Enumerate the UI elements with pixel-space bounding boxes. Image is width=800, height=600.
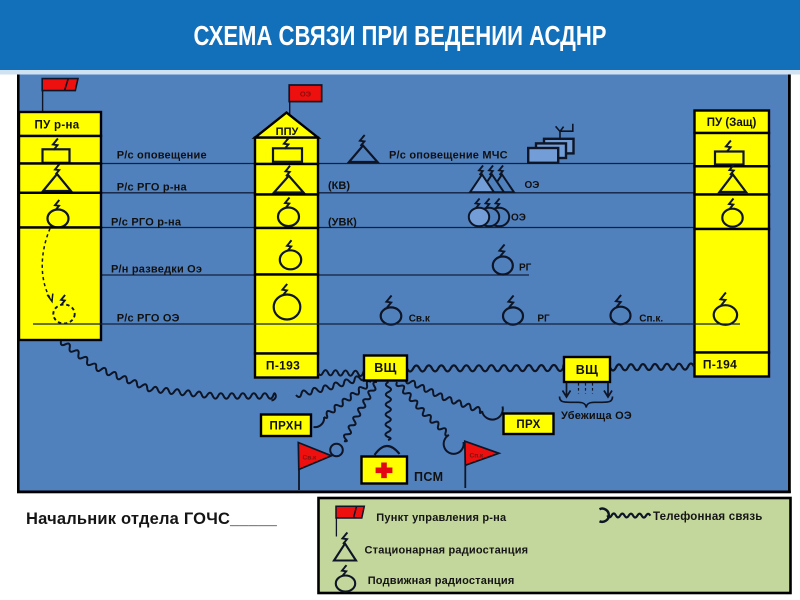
svg-text:ОЭ: ОЭ (300, 90, 312, 99)
svg-text:Р/с оповещение: Р/с оповещение (117, 150, 207, 162)
svg-text:ПУ (Защ): ПУ (Защ) (707, 117, 757, 129)
svg-text:Св.к: Св.к (409, 314, 431, 325)
svg-text:РГ: РГ (519, 263, 532, 274)
svg-text:Сп.к: Сп.к (470, 453, 484, 460)
svg-text:Стационарная радиостанция: Стационарная радиостанция (365, 545, 529, 557)
svg-text:РГ: РГ (537, 314, 550, 325)
svg-text:П-194: П-194 (703, 358, 737, 372)
svg-text:П-193: П-193 (266, 359, 300, 373)
svg-text:(КВ): (КВ) (328, 180, 350, 192)
svg-text:ОЭ: ОЭ (525, 180, 540, 191)
svg-text:(УВК): (УВК) (328, 217, 357, 229)
svg-text:Р/с РГО р-на: Р/с РГО р-на (117, 182, 188, 194)
svg-text:Телефонная связь: Телефонная связь (653, 511, 763, 523)
svg-text:Пункт управления р-на: Пункт управления р-на (376, 512, 507, 524)
svg-text:ВЩ: ВЩ (576, 363, 599, 377)
svg-text:Подвижная радиостанция: Подвижная радиостанция (368, 575, 515, 587)
svg-text:ПСМ: ПСМ (414, 470, 443, 484)
svg-text:ПРХ: ПРХ (516, 419, 540, 431)
svg-text:Св.к: Св.к (303, 455, 317, 462)
svg-text:Р/с РГО ОЭ: Р/с РГО ОЭ (117, 313, 180, 325)
svg-text:Начальник отдела ГОЧС_____: Начальник отдела ГОЧС_____ (26, 510, 278, 528)
svg-text:Убежища ОЭ: Убежища ОЭ (561, 410, 632, 422)
svg-text:Р/с оповещение МЧС: Р/с оповещение МЧС (389, 150, 508, 162)
svg-text:Р/н разведки Оэ: Р/н разведки Оэ (111, 264, 202, 276)
svg-text:ОЭ: ОЭ (511, 213, 526, 224)
svg-text:Р/с РГО р-на: Р/с РГО р-на (111, 217, 182, 229)
svg-text:ППУ: ППУ (276, 126, 299, 138)
svg-text:ПРХН: ПРХН (269, 421, 302, 433)
svg-text:ВЩ: ВЩ (374, 361, 397, 375)
svg-text:ПУ р-на: ПУ р-на (35, 120, 80, 132)
svg-text:СХЕМА СВЯЗИ ПРИ ВЕДЕНИИ АСДНР: СХЕМА СВЯЗИ ПРИ ВЕДЕНИИ АСДНР (194, 20, 607, 51)
svg-text:Сп.к.: Сп.к. (639, 314, 663, 325)
